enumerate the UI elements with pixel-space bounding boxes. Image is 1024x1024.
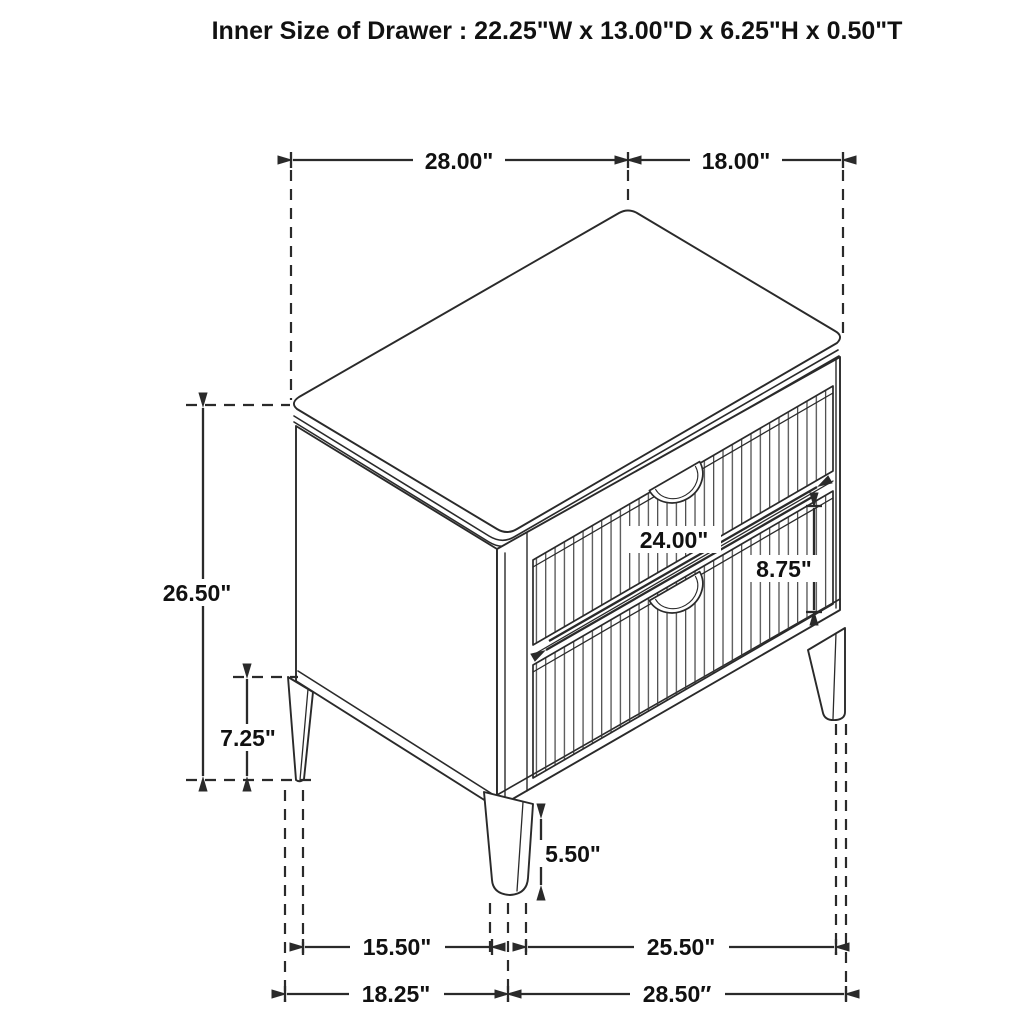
dim-label-leg-span-side: 15.50" <box>363 934 431 960</box>
leg-front <box>484 792 533 895</box>
dim-label-base-depth: 18.25" <box>362 981 430 1007</box>
dim-label-drawer-front-height: 8.75" <box>756 556 812 582</box>
dim-label-base-width: 28.50″ <box>643 981 712 1007</box>
dim-label-top-width: 28.00" <box>425 148 493 174</box>
diagram-page: 28.00" 18.00" 26.50" 7.25" 24.00" 8.75" … <box>0 0 1024 1024</box>
nightstand-drawing <box>288 211 845 896</box>
dim-label-leg-height: 5.50" <box>545 841 601 867</box>
page-title: Inner Size of Drawer : 22.25"W x 13.00"D… <box>212 17 903 45</box>
dim-label-drawer-width: 24.00" <box>640 527 708 553</box>
dim-label-top-depth: 18.00" <box>702 148 770 174</box>
leg-back-left <box>288 677 313 781</box>
diagram-svg: 28.00" 18.00" 26.50" 7.25" 24.00" 8.75" … <box>0 0 1024 1024</box>
leg-right <box>808 628 845 720</box>
dim-label-overall-height: 26.50" <box>163 580 231 606</box>
dim-label-leg-span-front: 25.50" <box>647 934 715 960</box>
dim-label-base-height: 7.25" <box>220 725 276 751</box>
